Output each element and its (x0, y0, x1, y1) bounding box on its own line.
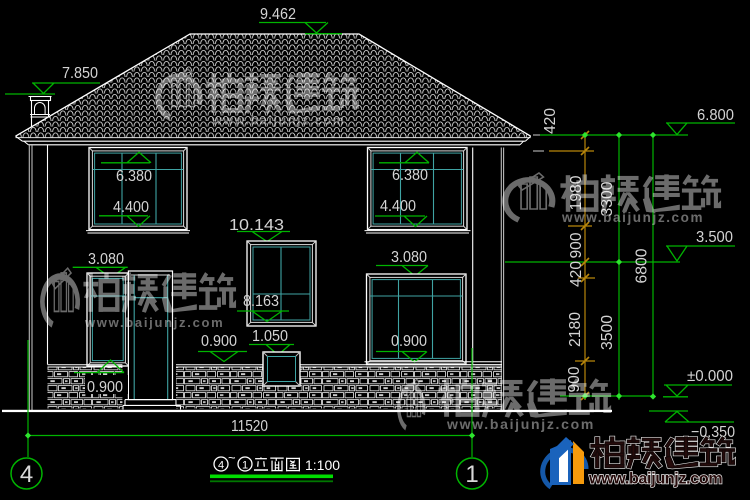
svg-text:3.080: 3.080 (391, 249, 427, 266)
svg-text:3500: 3500 (599, 315, 616, 350)
svg-text:www.baijunjz.com: www.baijunjz.com (446, 416, 595, 432)
svg-text:www.baijunjz.com: www.baijunjz.com (211, 114, 345, 128)
svg-text:1:100: 1:100 (305, 457, 340, 473)
svg-text:4.400: 4.400 (380, 198, 416, 215)
svg-text:6.800: 6.800 (697, 107, 734, 124)
svg-text:7.850: 7.850 (62, 65, 98, 82)
svg-text:6.380: 6.380 (116, 168, 152, 185)
svg-text:0.900: 0.900 (87, 379, 123, 396)
svg-text:www.baijunjz.com: www.baijunjz.com (561, 210, 704, 225)
svg-text:4.400: 4.400 (113, 199, 149, 216)
svg-text:±0.000: ±0.000 (687, 368, 733, 385)
svg-text:1.050: 1.050 (252, 328, 288, 345)
svg-text:1: 1 (465, 461, 478, 488)
svg-text:3.500: 3.500 (696, 229, 733, 246)
svg-text:420: 420 (542, 108, 559, 134)
svg-text:420: 420 (568, 261, 585, 287)
svg-text:1: 1 (242, 460, 248, 472)
svg-text:6.380: 6.380 (392, 167, 428, 184)
svg-text:8.163: 8.163 (243, 293, 279, 310)
svg-text:0.900: 0.900 (201, 333, 237, 350)
svg-text:9.462: 9.462 (260, 6, 296, 23)
svg-text:www.baijunjz.com: www.baijunjz.com (84, 315, 224, 330)
svg-text:4: 4 (218, 460, 224, 472)
svg-text:11520: 11520 (231, 418, 268, 435)
svg-text:~: ~ (228, 450, 236, 465)
svg-text:2180: 2180 (567, 312, 584, 347)
svg-text:6800: 6800 (634, 248, 651, 283)
svg-text:4: 4 (20, 461, 33, 488)
svg-text:www.baijunjz.com: www.baijunjz.com (588, 471, 722, 488)
svg-text:3.080: 3.080 (88, 251, 124, 268)
svg-text:900: 900 (568, 232, 585, 258)
svg-text:0.900: 0.900 (391, 333, 427, 350)
